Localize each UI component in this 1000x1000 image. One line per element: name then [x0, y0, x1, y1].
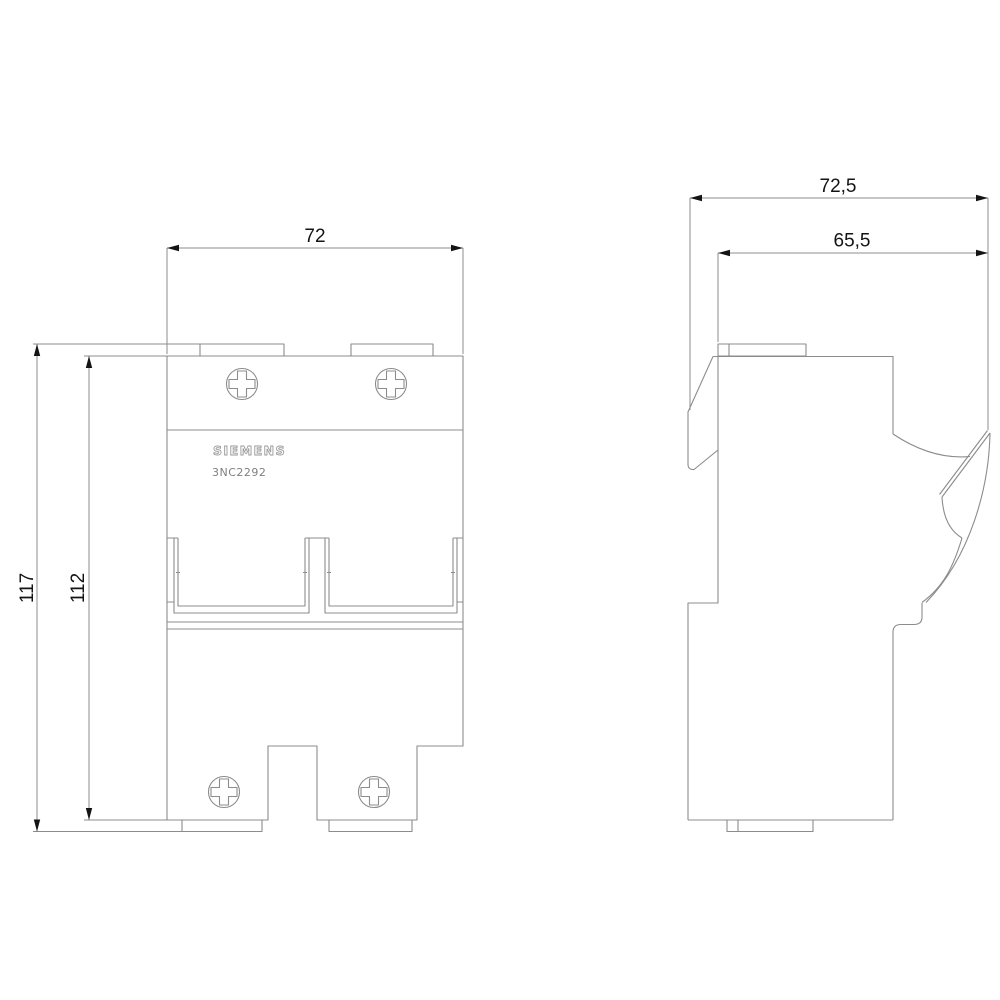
dim-width: 72 — [167, 226, 463, 354]
front-top-tab-left — [200, 344, 284, 356]
arrow-right-icon — [976, 195, 988, 201]
dim-label-overall-height: 117 — [17, 573, 38, 603]
arrow-left-icon — [690, 195, 702, 201]
switch-handle — [893, 431, 990, 603]
dim-label-body-height: 112 — [68, 573, 89, 603]
handle-base-arc — [942, 497, 962, 538]
arrow-left-icon — [718, 250, 730, 256]
technical-drawing-canvas: SIEMENS 3NC2292 — [0, 0, 1000, 1000]
side-top-tab — [718, 344, 806, 356]
screw-head-icon — [359, 777, 390, 808]
dim-width-lines — [167, 248, 463, 354]
front-view: SIEMENS 3NC2292 — [167, 344, 463, 832]
side-view — [688, 344, 990, 832]
front-bottom-tab-left — [182, 820, 262, 832]
dimension-drawing-page: SIEMENS 3NC2292 — [0, 0, 1000, 1000]
screw-head-icon — [209, 777, 240, 808]
handle-top-edge — [940, 431, 991, 498]
arrow-up-icon — [86, 356, 92, 368]
dim-label-body-depth: 65,5 — [834, 231, 871, 252]
din-clip — [688, 357, 718, 470]
dim-body-depth-lines — [718, 253, 988, 342]
side-right-lower-edge — [893, 603, 922, 820]
dim-label-overall-depth: 72,5 — [820, 176, 857, 197]
dim-label-width: 72 — [304, 226, 325, 247]
side-bottom-tab — [727, 820, 813, 832]
arrow-down-icon — [34, 820, 40, 832]
front-top-tab-right — [351, 344, 433, 356]
dim-overall-depth: 72,5 — [690, 176, 988, 430]
side-left-edge — [688, 356, 718, 820]
dim-body-height-lines — [84, 356, 167, 820]
screw-head-icon — [227, 369, 258, 400]
arrow-down-icon — [86, 808, 92, 820]
siemens-logo-text: SIEMENS — [213, 443, 286, 458]
arrow-right-icon — [451, 245, 463, 251]
handle-outer-curve — [926, 433, 990, 603]
front-bottom-tab-right — [329, 820, 412, 832]
arrow-left-icon — [167, 245, 179, 251]
arrow-right-icon — [976, 250, 988, 256]
front-body-outline — [167, 356, 463, 820]
model-number-text: 3NC2292 — [212, 466, 266, 479]
side-dimensions: 72,5 65,5 — [690, 176, 988, 430]
screw-head-icon — [376, 369, 407, 400]
dim-body-depth: 65,5 — [718, 231, 988, 343]
handle-inner-curve — [922, 538, 962, 603]
dim-body-height: 112 — [68, 356, 167, 820]
arrow-up-icon — [34, 344, 40, 356]
handle-recess-arc — [893, 434, 970, 457]
